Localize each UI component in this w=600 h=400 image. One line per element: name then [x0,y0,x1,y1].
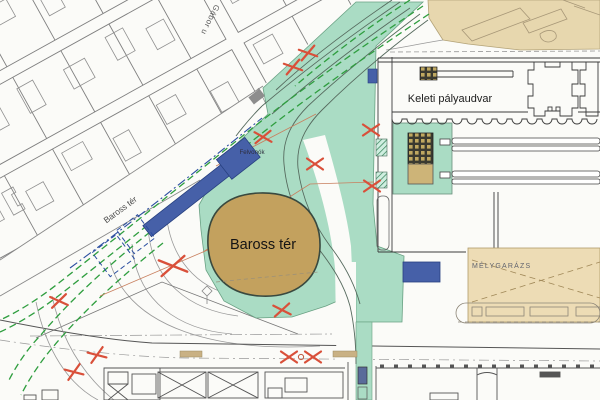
underground-garage: MÉLYGARÁZS [456,248,600,323]
station-ramp-block [408,164,433,184]
mast-symbol [202,286,212,304]
street-name-label-gabor: Gábor u [199,3,221,36]
station-entrance-blue [368,69,377,83]
map-viewport: Baross tér Keleti pályaudvar [0,0,600,400]
station-tower-right [580,62,598,116]
tram-stop-platform [248,89,265,105]
facade-escalator-upper [376,139,387,156]
crossing-island-east [333,351,357,357]
facade-escalator-lower [376,172,387,188]
elevators-label: Felvonók [239,149,265,156]
square-name-label: Baross tér [230,237,296,253]
street-shaft-blue [358,367,367,384]
park-strip-south [356,322,372,400]
station-tower-left [528,62,578,116]
station-stair-block [408,133,433,164]
station-name-label: Keleti pályaudvar [408,93,493,105]
platform-bars [440,138,600,184]
crossing-island-west [180,351,202,357]
bottom-buildings [24,362,600,400]
street-name-label-baross: Baross tér [102,194,139,225]
station-building: Keleti pályaudvar [376,57,600,252]
map-canvas: Baross tér Keleti pályaudvar [0,0,600,400]
garage-label: MÉLYGARÁZS [472,261,531,270]
garage-fill [468,248,600,322]
railway-yard-area [386,0,600,52]
station-canopy-block [420,67,437,80]
baross-square: Baross tér [208,193,320,296]
south-exit-blue [403,262,440,282]
